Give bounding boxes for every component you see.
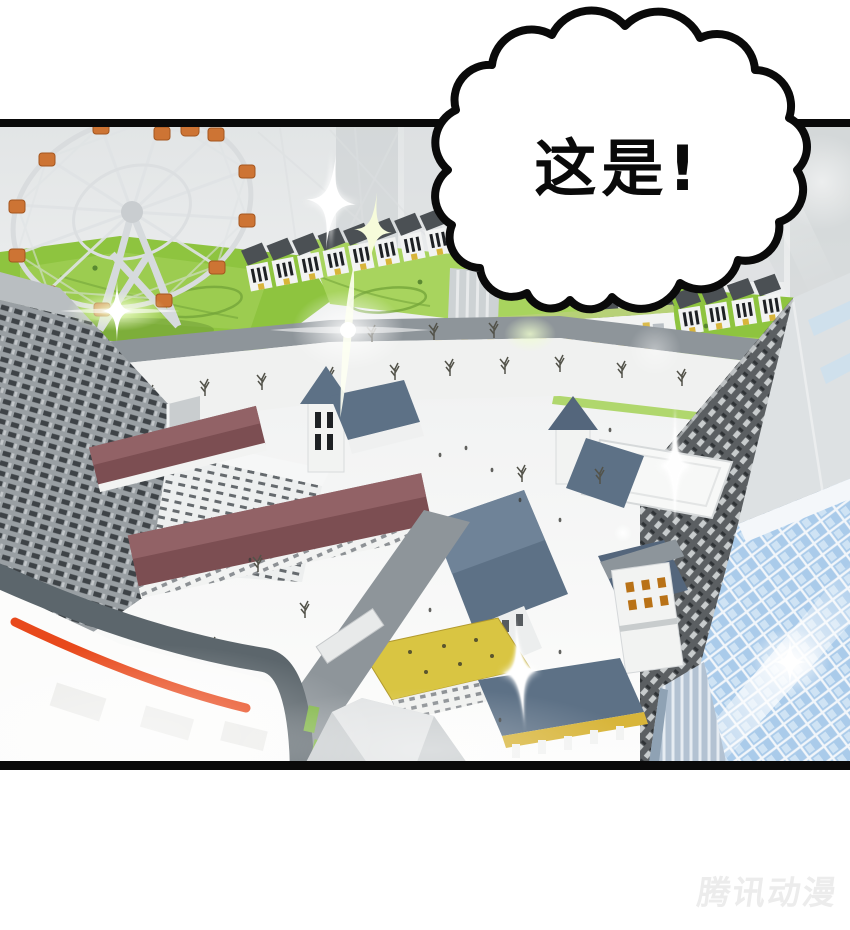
- panel-bottom-border: [0, 761, 850, 770]
- comic-panel-art: 这是! 腾讯动漫: [0, 0, 850, 930]
- watermark-text: 腾讯动漫: [695, 873, 840, 912]
- speech-bubble-text: 这是!: [534, 132, 701, 205]
- comic-page: 这是! 腾讯动漫: [0, 0, 850, 930]
